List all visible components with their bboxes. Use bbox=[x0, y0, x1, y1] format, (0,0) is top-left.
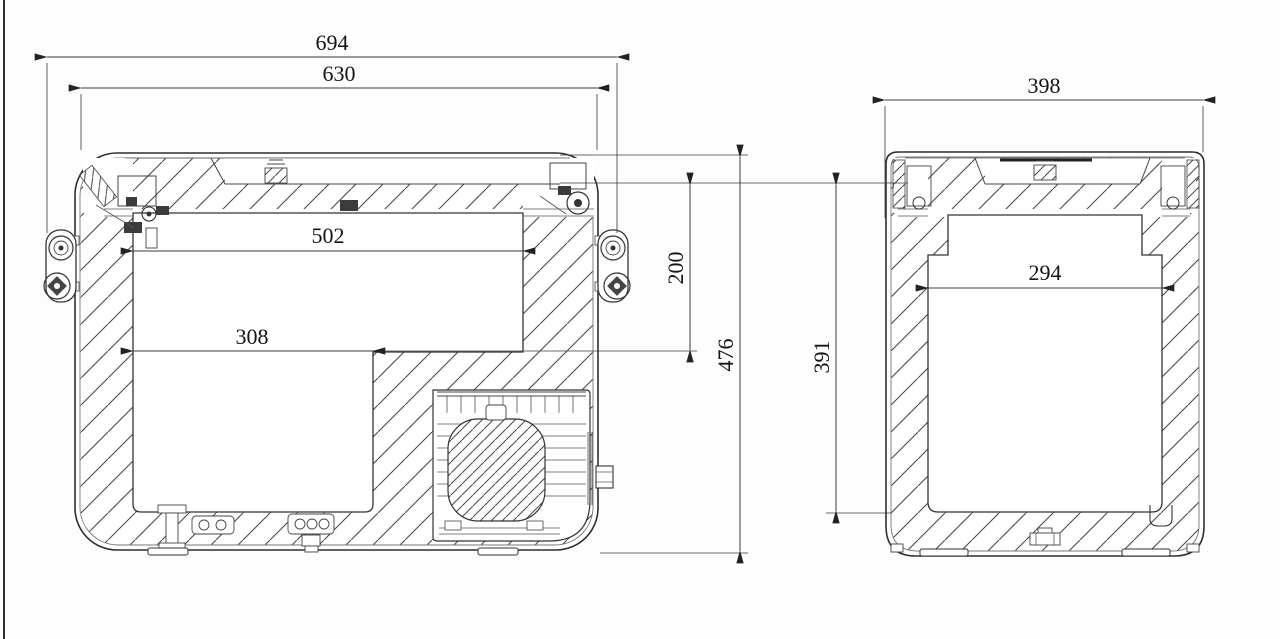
side-section-view bbox=[886, 152, 1204, 556]
dim-694-label: 694 bbox=[316, 30, 349, 55]
dim-200-label: 200 bbox=[663, 252, 688, 285]
left-handle-bracket bbox=[44, 230, 79, 302]
lid-catch-block bbox=[340, 200, 358, 211]
dim-502-label: 502 bbox=[312, 223, 345, 248]
dim-308-label: 308 bbox=[236, 324, 269, 349]
front-left-foot bbox=[148, 548, 188, 555]
dim-391-label: 391 bbox=[809, 341, 834, 374]
right-handle-bracket bbox=[595, 230, 630, 302]
technical-drawing-canvas: 694 630 502 308 200 476 391 398 294 bbox=[0, 0, 1280, 639]
dim-476-label: 476 bbox=[713, 339, 738, 372]
side-left-foot bbox=[920, 549, 968, 556]
front-right-foot bbox=[478, 548, 518, 555]
side-right-foot bbox=[1122, 549, 1170, 556]
power-connector bbox=[588, 432, 613, 505]
dim-body-width bbox=[81, 88, 597, 150]
dim-294-label: 294 bbox=[1029, 260, 1062, 285]
dim-398-label: 398 bbox=[1028, 73, 1061, 98]
drawing-page: 694 630 502 308 200 476 391 398 294 bbox=[0, 0, 1280, 639]
front-section-view bbox=[44, 153, 630, 555]
dim-630-label: 630 bbox=[323, 61, 356, 86]
